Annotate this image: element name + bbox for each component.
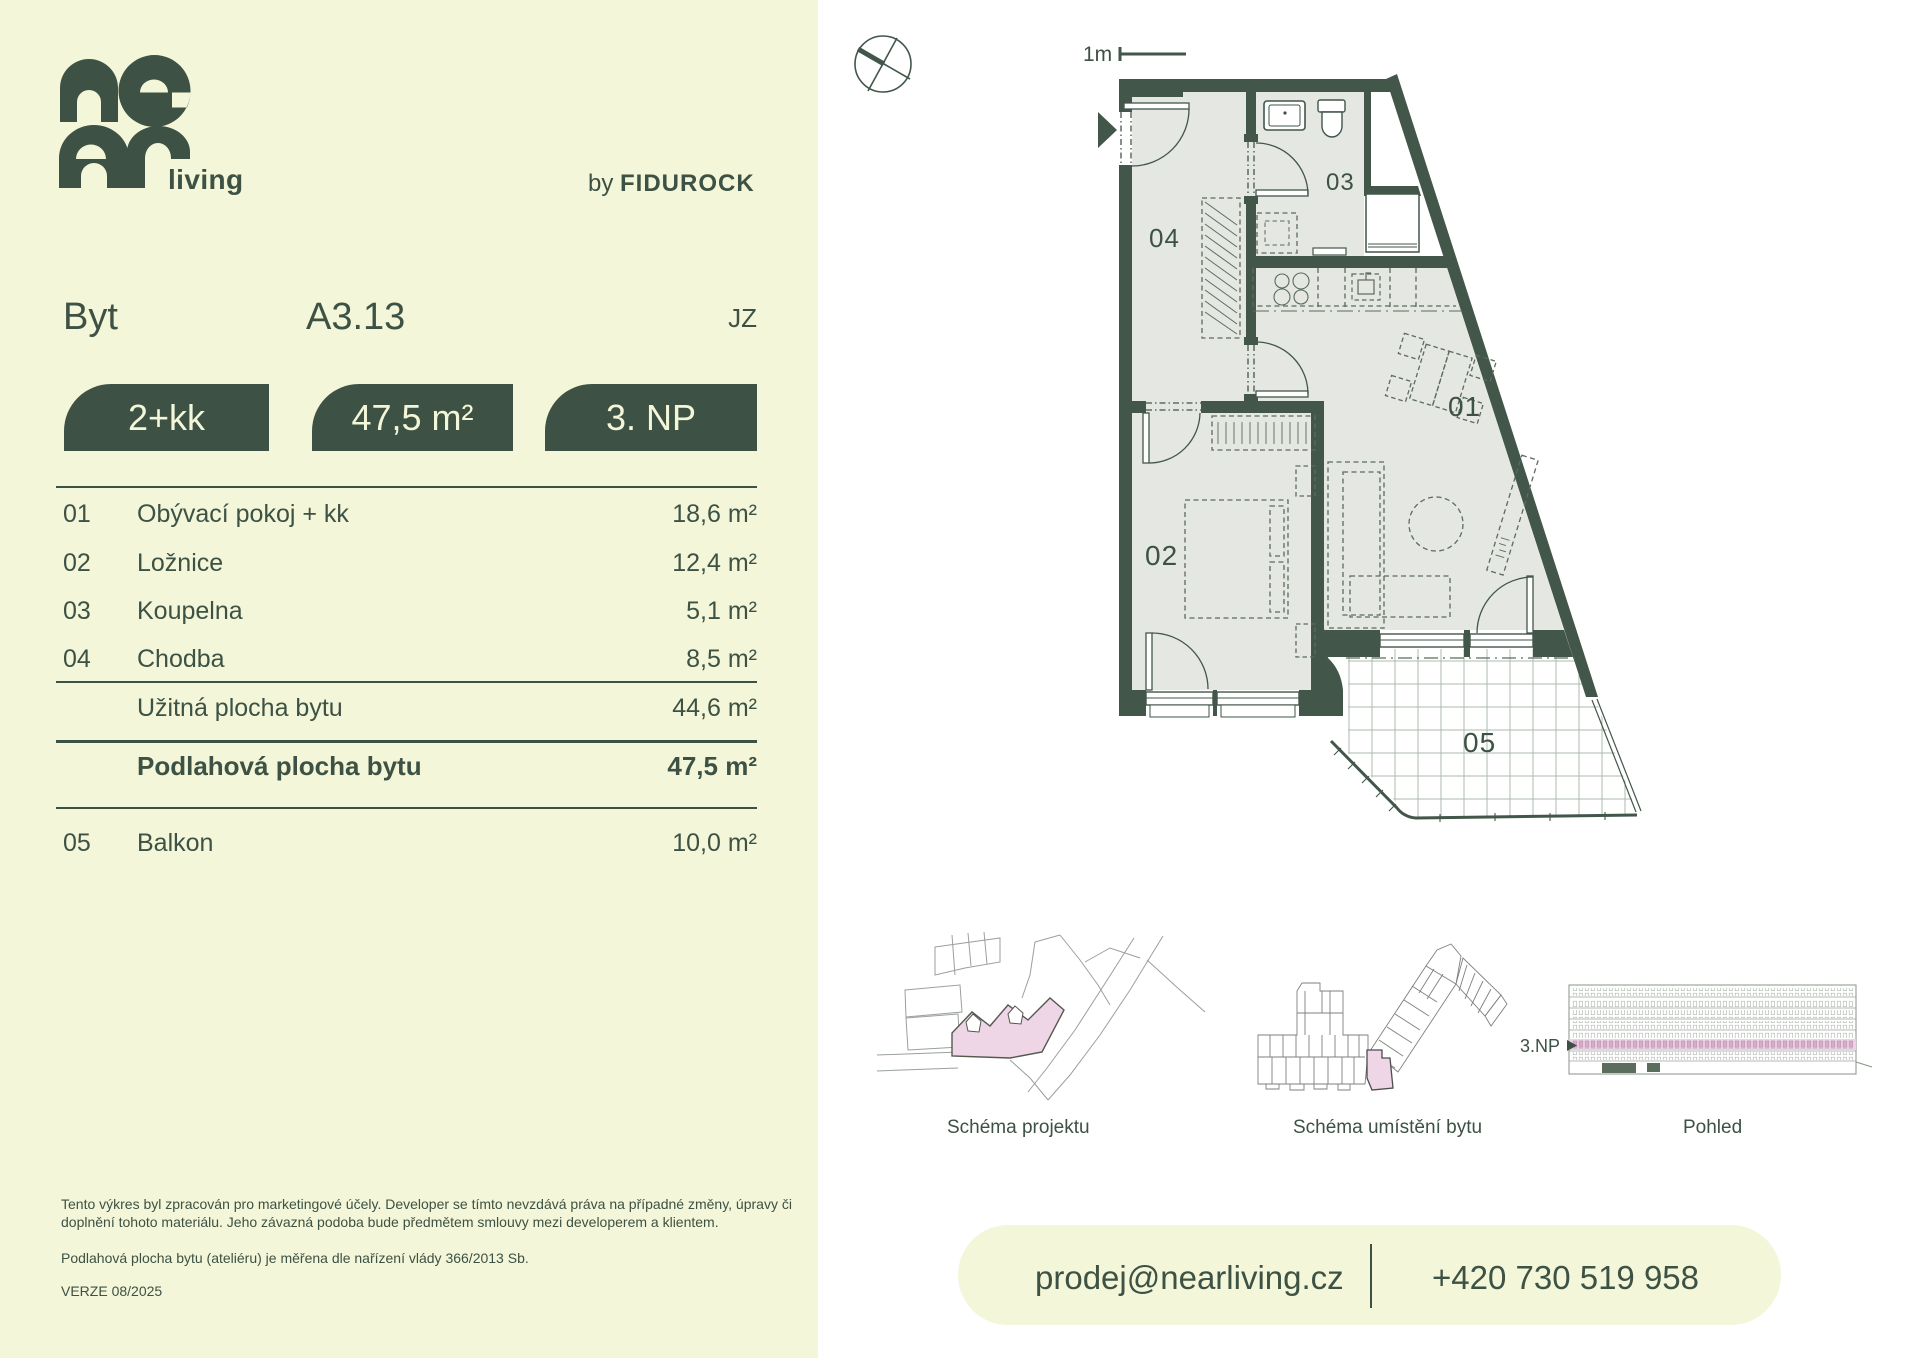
svg-text:01: 01 xyxy=(1448,391,1481,422)
svg-text:Schéma umístění bytu: Schéma umístění bytu xyxy=(1293,1117,1482,1138)
svg-text:Pohled: Pohled xyxy=(1683,1117,1742,1138)
svg-text:03: 03 xyxy=(1326,169,1355,196)
svg-text:living: living xyxy=(168,164,244,195)
svg-text:3.NP: 3.NP xyxy=(1520,1036,1560,1056)
svg-text:05: 05 xyxy=(1463,727,1496,758)
svg-text:02: 02 xyxy=(1145,540,1178,571)
svg-text:04: 04 xyxy=(1149,223,1180,253)
svg-text:Schéma projektu: Schéma projektu xyxy=(947,1117,1090,1138)
svg-text:1m: 1m xyxy=(1083,43,1112,66)
